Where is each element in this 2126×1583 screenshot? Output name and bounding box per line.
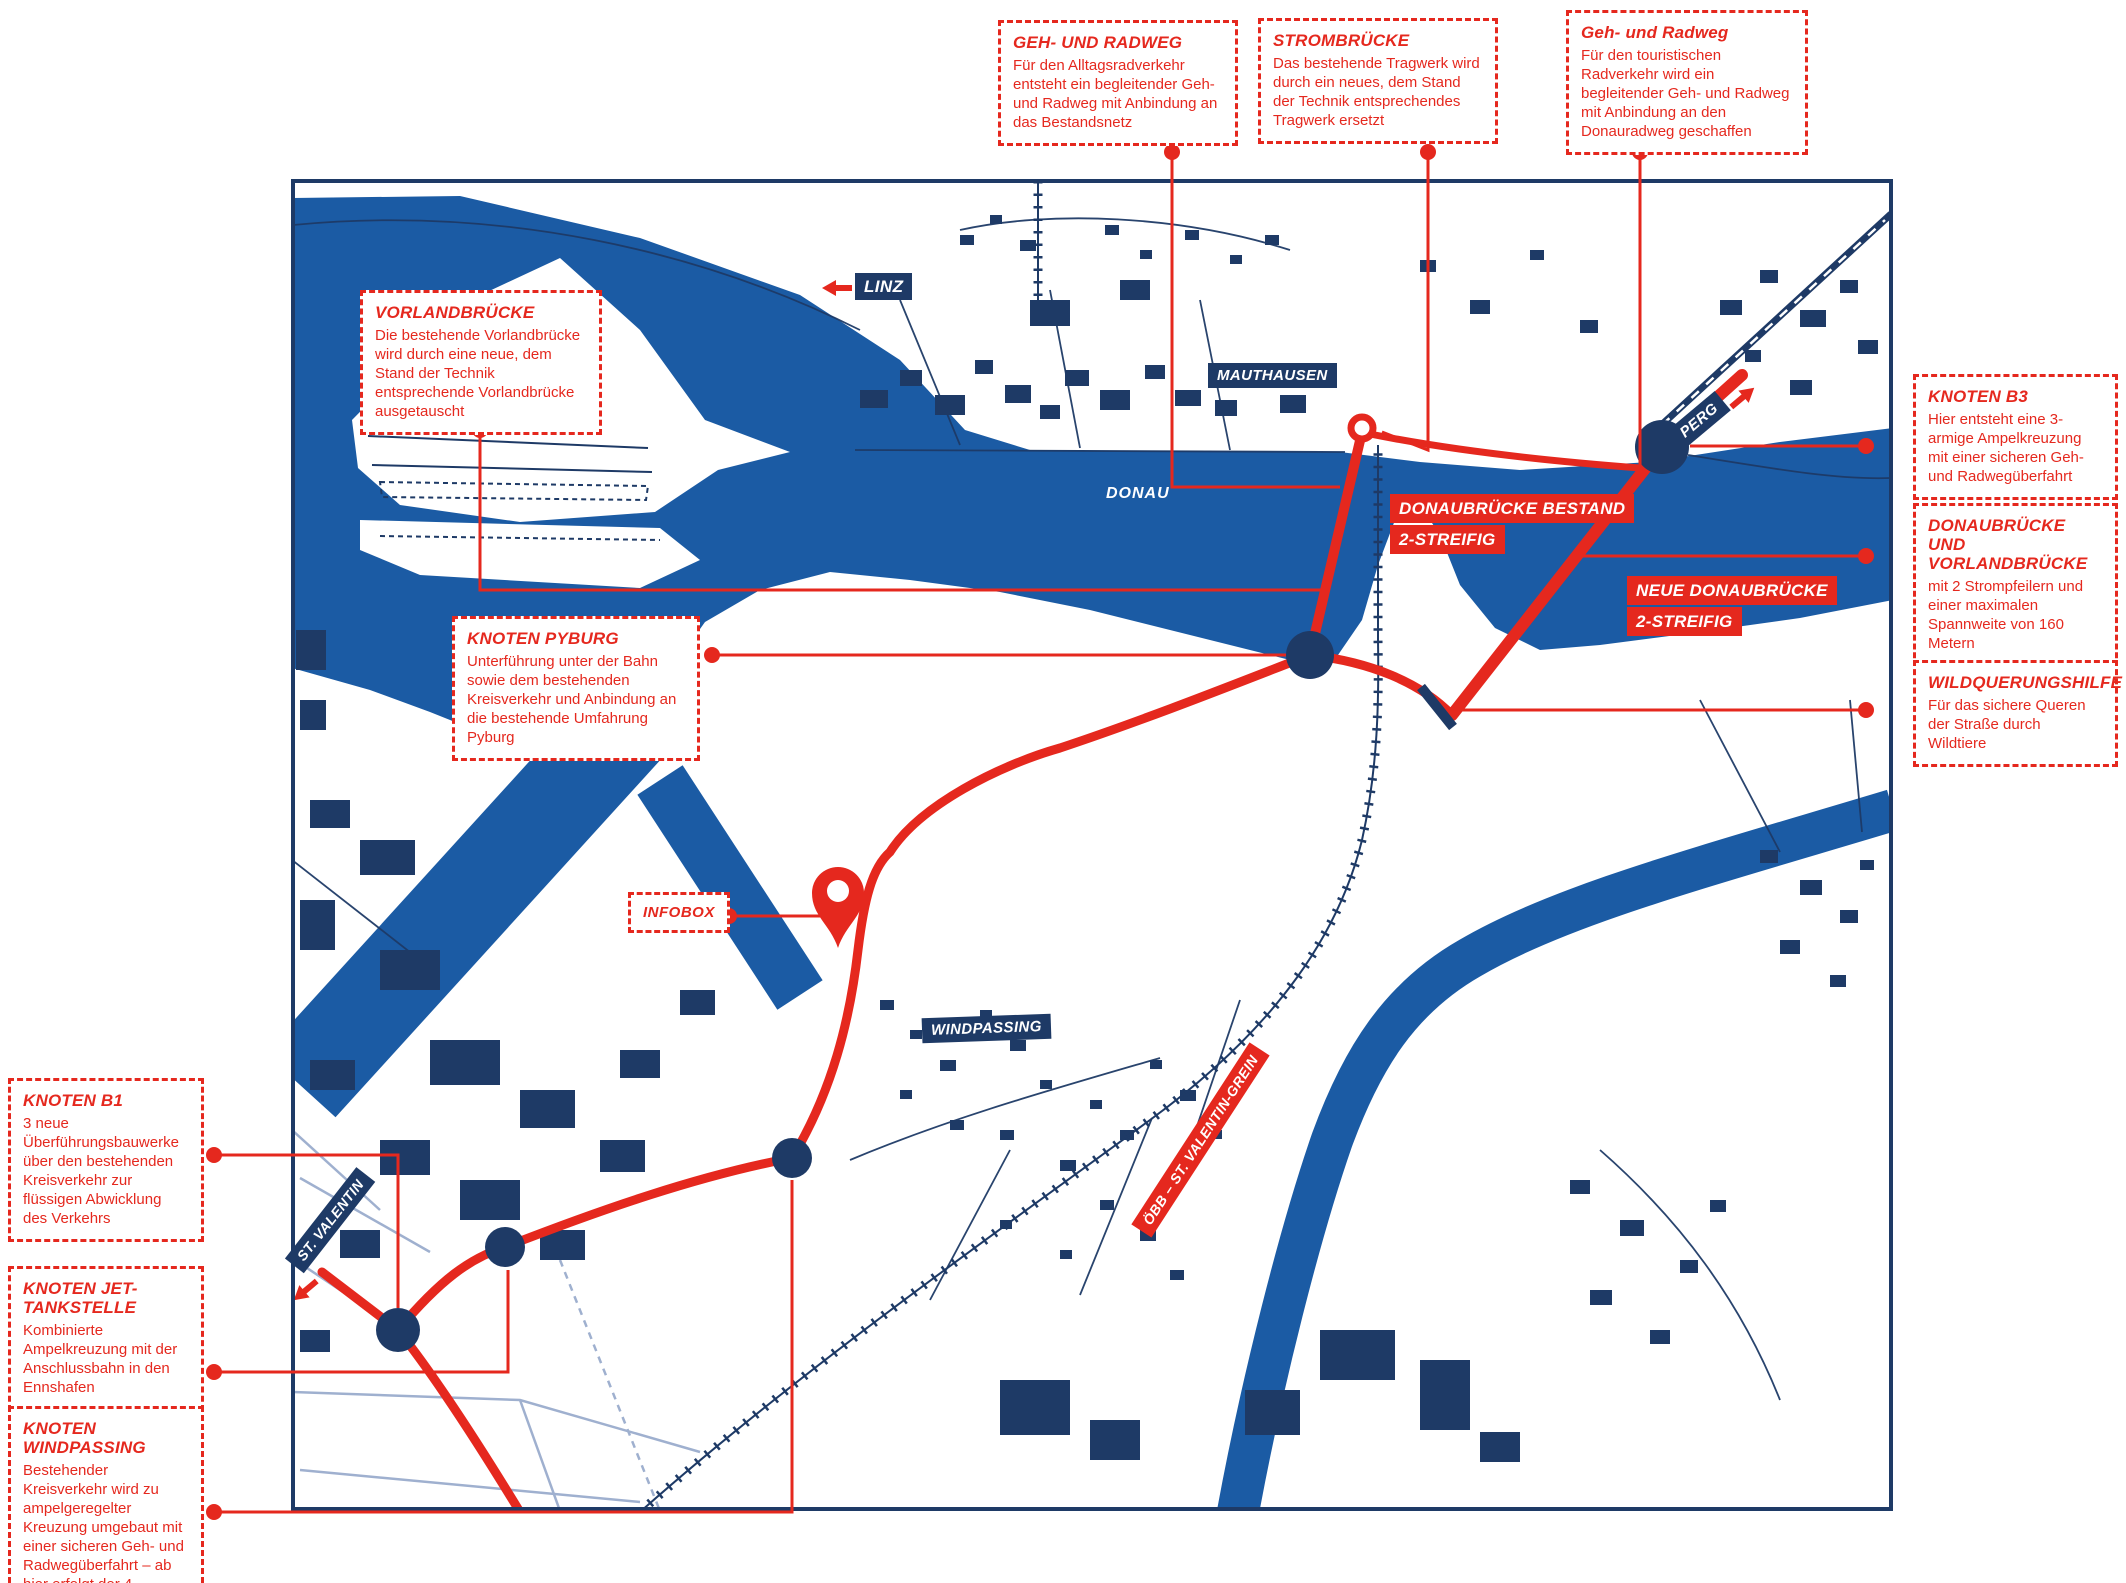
map-canvas: [0, 0, 2126, 1583]
callout-knoten-jet-tankstelle: KNOTEN JET-TANKSTELLE Kombinierte Ampelk…: [8, 1266, 204, 1411]
mauthausen-label: MAUTHAUSEN: [1208, 363, 1337, 388]
callout-title: KNOTEN WINDPASSING: [23, 1419, 189, 1457]
windpassing-label: WINDPASSING: [922, 1014, 1052, 1043]
callout-title: Geh- und Radweg: [1581, 23, 1793, 42]
callout-geh-und-radweg-alltag: GEH- UND RADWEG Für den Alltagsradverkeh…: [998, 20, 1238, 146]
callout-body: Das bestehende Tragwerk wird durch ein n…: [1273, 54, 1483, 130]
neue-donaubruecke-label: NEUE DONAUBRÜCKE 2-STREIFIG: [1627, 576, 1837, 638]
neue-donaubruecke-line1: NEUE DONAUBRÜCKE: [1627, 576, 1837, 605]
callout-body: mit 2 Strompfeilern und einer maximalen …: [1928, 577, 2103, 653]
callout-knoten-b3: KNOTEN B3 Hier entsteht eine 3-armige Am…: [1913, 374, 2118, 500]
callout-geh-und-radweg-tourist: Geh- und Radweg Für den touristischen Ra…: [1566, 10, 1808, 155]
project-map-infographic: LINZ MAUTHAUSEN PERG WINDPASSING ST. VAL…: [0, 0, 2126, 1583]
callout-body: Für das sichere Queren der Straße durch …: [1928, 696, 2103, 753]
linz-label: LINZ: [855, 273, 912, 300]
donau-label: DONAU: [1106, 486, 1170, 502]
knoten-windpassing-marker: [772, 1138, 812, 1178]
donaubruecke-bestand-line1: DONAUBRÜCKE BESTAND: [1390, 494, 1634, 523]
callout-vorlandbruecke: VORLANDBRÜCKE Die bestehende Vorlandbrüc…: [360, 290, 602, 435]
callout-title: KNOTEN PYBURG: [467, 629, 685, 648]
callout-title: DONAUBRÜCKE UND VORLANDBRÜCKE: [1928, 516, 2103, 573]
donaubruecke-bestand-label: DONAUBRÜCKE BESTAND 2-STREIFIG: [1390, 494, 1634, 556]
railway-perg: [1656, 214, 1891, 430]
callout-title: VORLANDBRÜCKE: [375, 303, 587, 322]
callout-title: KNOTEN B3: [1928, 387, 2103, 406]
callout-body: Hier entsteht eine 3-armige Ampelkreuzun…: [1928, 410, 2103, 486]
strombruecke-ring-marker: [1351, 417, 1373, 439]
callout-knoten-pyburg: KNOTEN PYBURG Unterführung unter der Bah…: [452, 616, 700, 761]
callout-title: WILDQUERUNGSHILFE: [1928, 673, 2103, 692]
callout-body: Für den touristischen Radverkehr wird ei…: [1581, 46, 1793, 141]
knoten-b1-marker: [376, 1308, 420, 1352]
callout-title: KNOTEN B1: [23, 1091, 189, 1110]
callout-body: Bestehender Kreisverkehr wird zu ampelge…: [23, 1461, 189, 1583]
harbour-basin: [660, 780, 800, 995]
callout-title: GEH- UND RADWEG: [1013, 33, 1223, 52]
callout-title: STROMBRÜCKE: [1273, 31, 1483, 50]
callout-body: Die bestehende Vorlandbrücke wird durch …: [375, 326, 587, 421]
callout-strombruecke: STROMBRÜCKE Das bestehende Tragwerk wird…: [1258, 18, 1498, 144]
callout-body: Kombinierte Ampelkreuzung mit der Anschl…: [23, 1321, 189, 1397]
knoten-pyburg-marker: [1286, 631, 1334, 679]
callout-donaubruecke-und-vorlandbruecke: DONAUBRÜCKE UND VORLANDBRÜCKE mit 2 Stro…: [1913, 503, 2118, 667]
knoten-jet-marker: [485, 1227, 525, 1267]
infobox-label: INFOBOX: [628, 892, 730, 933]
callout-wildquerungshilfe: WILDQUERUNGSHILFE Für das sichere Queren…: [1913, 660, 2118, 767]
neue-donaubruecke-line2: 2-STREIFIG: [1627, 607, 1742, 636]
donaubruecke-bestand-line2: 2-STREIFIG: [1390, 525, 1505, 554]
callout-knoten-b1: KNOTEN B1 3 neue Überführungsbauwerke üb…: [8, 1078, 204, 1242]
callout-body: Für den Alltagsradverkehr entsteht ein b…: [1013, 56, 1223, 132]
callout-body: 3 neue Überführungsbauwerke über den bes…: [23, 1114, 189, 1228]
callout-body: Unterführung unter der Bahn sowie dem be…: [467, 652, 685, 747]
callout-knoten-windpassing: KNOTEN WINDPASSING Bestehender Kreisverk…: [8, 1406, 204, 1583]
ennskanal: [1238, 810, 1893, 1512]
arrow-linz-icon: [822, 280, 852, 296]
callout-title: KNOTEN JET-TANKSTELLE: [23, 1279, 189, 1317]
